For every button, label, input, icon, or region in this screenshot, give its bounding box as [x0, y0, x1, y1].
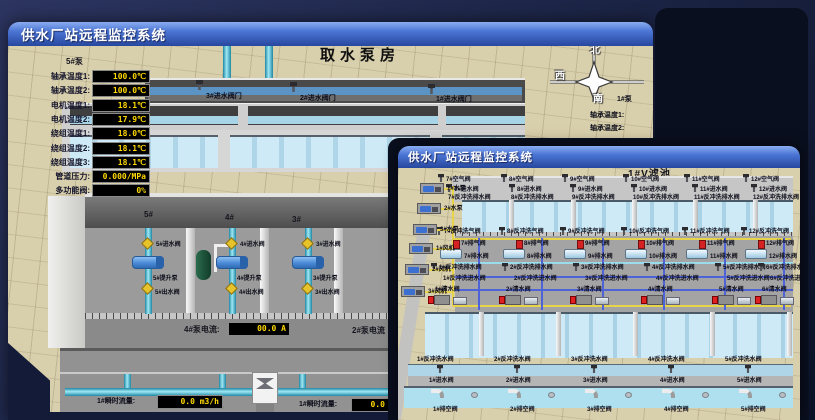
pool-pier — [710, 312, 715, 356]
bottom-inlet-valve-label: 5#进水阀 — [737, 378, 762, 385]
bw-drain-valve-label: 12#反冲洗排水阀 — [753, 195, 799, 202]
air-valve-label: 11#空气阀 — [692, 177, 720, 184]
lift-pump-label: 4#提升泵 — [237, 276, 262, 283]
compass-west-label: 西 — [555, 72, 565, 82]
panel-row-value: 18.1℃ — [92, 156, 150, 169]
flow-meter-cabinet[interactable] — [252, 372, 278, 404]
panel-row-label: 绕组温度2: — [12, 143, 90, 155]
clean-valve-label: 5#清水阀 — [719, 287, 744, 294]
panel-row-value: 100.0℃ — [92, 84, 150, 97]
inlet-valve-label: 12#进水阀 — [759, 187, 787, 194]
low-bw-inlet-valve-label: 3#反冲洗进水阀 — [585, 276, 628, 283]
panel-row-value: 18.0℃ — [92, 127, 150, 140]
panel-row-label: 管道压力: — [12, 171, 90, 183]
desktop: 供水厂站远程监控系统 取水泵房 — [0, 0, 815, 420]
clean-water-tank-icon — [686, 249, 708, 259]
pool-pier — [787, 312, 792, 356]
floor-pier — [334, 228, 343, 313]
floor-pier — [186, 228, 195, 313]
pool-pier — [753, 200, 758, 232]
vent-valve-label: 10#排气阀 — [646, 241, 674, 248]
flow-meter-icon — [256, 378, 274, 389]
drain-valve-label: 12#排水阀 — [769, 254, 797, 261]
panel-row-label: 多功能阀: — [12, 185, 90, 197]
air-valve-icon[interactable] — [438, 174, 444, 182]
intake-channel-water — [148, 87, 522, 95]
air-valve-label: 10#空气阀 — [631, 177, 659, 184]
lift-pump-icon[interactable] — [292, 256, 324, 269]
low-bw-inlet-valve-label: 4#反冲洗进水阀 — [656, 276, 699, 283]
valve-actuator-box[interactable] — [453, 297, 467, 305]
valve-actuator-box[interactable] — [434, 295, 450, 305]
bw-water-valve-label: 5#反冲洗水阀 — [725, 357, 762, 364]
bw-drain-valve-label: 8#反冲洗排水阀 — [511, 195, 554, 202]
pressure-tank-icon — [196, 250, 211, 280]
clean-valve-label: 3#清水阀 — [577, 287, 602, 294]
pool-pier — [509, 200, 514, 232]
clean-valve-label: 4#清水阀 — [648, 287, 673, 294]
valve-actuator-box[interactable] — [595, 297, 609, 305]
panel-row-label: 轴承温度1: — [12, 71, 90, 83]
air-blower-icon[interactable] — [405, 264, 429, 275]
inlet-gate-valve-label: 3#进水阀门 — [206, 93, 242, 101]
pump-house-floor — [85, 228, 389, 313]
backwash-pump-icon[interactable] — [420, 183, 444, 194]
float-dot-icon — [779, 392, 786, 398]
panel-row-value: 18.1℃ — [92, 142, 150, 155]
column-drop-pipe — [478, 238, 480, 310]
lift-pump-icon[interactable] — [216, 256, 248, 269]
drain-elbow-pipe-icon — [585, 389, 598, 398]
clean-water-tank-icon — [503, 249, 525, 259]
bw-water-valve-label: 3#反冲洗水阀 — [571, 357, 608, 364]
drain-valve-label: 7#排水阀 — [464, 254, 489, 261]
bw-drain-valve-label: 11#反冲洗排水阀 — [694, 195, 740, 202]
air-valve-label: 12#空气阀 — [751, 177, 779, 184]
compass-south-label: 南 — [593, 95, 603, 105]
panel-row-value: 18.1℃ — [92, 99, 150, 112]
low-bw-inlet-valve-label: 5#反冲洗进水阀 — [727, 276, 770, 283]
column-drop-pipe — [541, 238, 543, 310]
drain-elbow-pipe-icon — [508, 389, 521, 398]
air-valve-label: 9#空气阀 — [570, 177, 595, 184]
pool-pier — [571, 200, 576, 232]
drain-valve-label: 10#排水阀 — [649, 254, 677, 261]
panel-row-label: 绕组温度3: — [12, 157, 90, 169]
inlet-valve-label: 10#进水阀 — [639, 187, 667, 194]
bw-drain-valve-label: 9#反冲洗排水阀 — [572, 195, 615, 202]
building-wall — [48, 196, 85, 348]
riser-pipe — [223, 46, 231, 79]
bw-air-valve-label: 8#反冲洗气阀 — [507, 229, 544, 236]
bottom-inlet-valve-label: 1#进水阀 — [429, 378, 454, 385]
clean-water-tank-icon — [625, 249, 647, 259]
pump-panel-title: 5#泵 — [66, 57, 83, 66]
low-bw-drain-valve-label: 2#反冲洗排水阀 — [510, 265, 553, 272]
clean-water-tank-icon — [745, 249, 767, 259]
vent-valve-icon[interactable] — [638, 240, 645, 249]
bw-air-valve-label: 12#反冲洗气阀 — [749, 229, 789, 236]
low-bw-drain-valve-label: 6#反冲洗排水阀 — [766, 265, 800, 272]
empty-valve-label: 5#排空阀 — [741, 407, 766, 414]
pool-pier — [632, 200, 637, 232]
vent-valve-icon[interactable] — [758, 240, 765, 249]
pool-pier — [693, 200, 698, 232]
vent-valve-label: 12#排气阀 — [766, 241, 794, 248]
clean-valve-label: 2#清水阀 — [506, 287, 531, 294]
bw-drain-valve-label: 10#反冲洗排水阀 — [633, 195, 679, 202]
filter-pool-scene: 1#V滤池 7#空气阀7#进水阀7#反冲洗排水阀7#反冲洗气阀7#排气阀7#排水 — [398, 168, 800, 420]
equipment-label: 1#风机 — [436, 246, 455, 253]
bay-label: 5# — [144, 210, 153, 219]
backwash-pump-icon[interactable] — [417, 203, 441, 214]
inlet-gate-valve-label: 1#进水阀门 — [436, 96, 472, 104]
bay-label: 4# — [225, 213, 234, 222]
cabinet-base — [256, 404, 274, 412]
vent-valve-label: 8#排气阀 — [524, 241, 549, 248]
drain-valve-label: 11#排水阀 — [710, 254, 738, 261]
pump-inlet-valve-label: 4#进水阀 — [240, 242, 265, 249]
back-window-titlebar[interactable]: 供水厂站远程监控系统 — [8, 22, 653, 46]
main-pipe — [65, 388, 389, 396]
float-dot-icon — [625, 392, 632, 398]
flow-label-2: 1#瞬时流量: — [299, 401, 337, 409]
float-dot-icon — [471, 392, 478, 398]
equipment-label: 3#水泵 — [440, 227, 459, 234]
valve-actuator-box[interactable] — [576, 295, 592, 305]
vent-valve-icon[interactable] — [577, 240, 584, 249]
drain-elbow-pipe-icon — [739, 389, 752, 398]
valve-actuator-box[interactable] — [780, 297, 794, 305]
lift-pump-icon[interactable] — [132, 256, 164, 269]
panel-row-label: 电机温度1: — [12, 100, 90, 112]
low-bw-inlet-valve-label: 2#反冲洗进水阀 — [514, 276, 557, 283]
low-bw-inlet-valve-label: 6#反冲洗进水阀 — [770, 276, 800, 283]
low-bw-drain-valve-label: 4#反冲洗排水阀 — [652, 265, 695, 272]
riser-pipe — [265, 46, 273, 79]
air-valve-label: 7#空气阀 — [446, 177, 471, 184]
lift-pump-label: 5#提升泵 — [153, 276, 178, 283]
bw-air-valve-label: 10#反冲洗气阀 — [629, 229, 669, 236]
scene-shadow — [8, 326, 50, 420]
inlet-valve-label: 11#进水阀 — [700, 187, 728, 194]
valve-actuator-box[interactable] — [737, 297, 751, 305]
valve-actuator-box[interactable] — [647, 295, 663, 305]
drain-elbow-pipe-icon — [431, 389, 444, 398]
panel-row-label: 绕组温度1: — [12, 128, 90, 140]
panel-row-value: 100.0℃ — [92, 70, 150, 83]
pump-outlet-valve-label: 3#出水阀 — [315, 290, 340, 297]
drain-elbow-pipe-icon — [662, 389, 675, 398]
column-drop-pipe — [663, 238, 665, 310]
backwash-pump-icon[interactable] — [413, 224, 437, 235]
channel-water — [446, 116, 525, 124]
air-main — [453, 238, 791, 240]
pump-outlet-valve-label: 5#出水阀 — [155, 290, 180, 297]
back-window-title: 供水厂站远程监控系统 — [21, 24, 166, 44]
bottom-inlet-valve-label: 4#进水阀 — [660, 378, 685, 385]
panel-row-value: 0% — [92, 184, 150, 197]
pump-current-value: 00.0 A — [228, 322, 290, 336]
pump-current-label-2: 2#泵电流 — [352, 326, 385, 335]
flow-value-1: 0.0 m3/h — [157, 395, 223, 409]
panel-row-label: 轴承温度2: — [12, 85, 90, 97]
scene-title: 取水泵房 — [320, 48, 400, 65]
bottom-inlet-valve-label: 3#进水阀 — [583, 378, 608, 385]
drain-valve-label: 8#排水阀 — [527, 254, 552, 261]
float-dot-icon — [702, 392, 709, 398]
empty-valve-label: 4#排空阀 — [664, 407, 689, 414]
clean-water-tank-icon — [564, 249, 586, 259]
inlet-valve-label: 9#进水阀 — [578, 187, 603, 194]
vent-valve-label: 11#排气阀 — [707, 241, 735, 248]
clean-valve-label: 6#清水阀 — [762, 287, 787, 294]
valve-actuator-box[interactable] — [666, 297, 680, 305]
flow-label-1: 1#瞬时流量: — [97, 398, 135, 406]
bw-water-valve-label: 2#反冲洗水阀 — [494, 357, 531, 364]
empty-valve-label: 3#排空阀 — [587, 407, 612, 414]
lift-pump-label: 3#提升泵 — [313, 276, 338, 283]
right-panel-row-label: 轴承温度2: — [590, 125, 624, 133]
vent-valve-icon[interactable] — [699, 240, 706, 249]
bay-label: 3# — [292, 215, 301, 224]
valve-actuator-box[interactable] — [505, 295, 521, 305]
valve-actuator-box[interactable] — [718, 295, 734, 305]
float-dot-icon — [548, 392, 555, 398]
equipment-label: 2#风机 — [432, 267, 451, 274]
air-blower-icon[interactable] — [409, 243, 433, 254]
vent-valve-label: 7#排气阀 — [461, 241, 486, 248]
compass-north-label: 北 — [590, 46, 600, 56]
bottom-inlet-valve-label: 2#进水阀 — [506, 378, 531, 385]
panel-row-label: 电机温度2: — [12, 114, 90, 126]
front-window-titlebar[interactable]: 供水厂站远程监控系统 — [398, 146, 800, 168]
inlet-gate-valve-label: 2#进水阀门 — [300, 95, 336, 103]
channel-water — [248, 116, 438, 124]
drain-channel — [404, 386, 793, 408]
air-branch-main — [453, 305, 791, 307]
equipment-label: 2#水泵 — [444, 206, 463, 213]
equipment-label: 1#水泵 — [447, 186, 466, 193]
empty-valve-label: 1#排空阀 — [433, 407, 458, 414]
pump-house-wall — [85, 197, 389, 228]
pool-pier — [633, 312, 638, 356]
front-window: 供水厂站远程监控系统 1#V滤池 — [398, 146, 800, 420]
inlet-valve-label: 8#进水阀 — [517, 187, 542, 194]
bw-air-valve-label: 11#反冲洗气阀 — [690, 229, 730, 236]
vent-valve-label: 9#排气阀 — [585, 241, 610, 248]
bw-air-valve-label: 9#反冲洗气阀 — [568, 229, 605, 236]
valve-actuator-box[interactable] — [524, 297, 538, 305]
equipment-label: 3#风机 — [428, 289, 447, 296]
air-blower-icon[interactable] — [401, 286, 425, 297]
empty-valve-label: 2#排空阀 — [510, 407, 535, 414]
panel-row-value: 17.9℃ — [92, 113, 150, 126]
drain-valve-label: 9#排水阀 — [588, 254, 613, 261]
pump-inlet-valve-label: 5#进水阀 — [156, 242, 181, 249]
pump-current-label: 4#泵电流: — [184, 325, 220, 334]
low-bw-drain-valve-label: 3#反冲洗排水阀 — [581, 265, 624, 272]
bw-water-valve-label: 4#反冲洗水阀 — [648, 357, 685, 364]
low-bw-inlet-valve-label: 1#反冲洗进水阀 — [443, 276, 486, 283]
panel-row-value: 0.000/MPa — [92, 170, 150, 183]
floor-pier — [260, 228, 269, 313]
right-panel-pump-label: 1#泵 — [617, 96, 632, 104]
pump-inlet-valve-label: 3#进水阀 — [316, 242, 341, 249]
bw-water-valve-label: 1#反冲洗水阀 — [417, 357, 454, 364]
front-window-title: 供水厂站远程监控系统 — [408, 149, 533, 165]
pump-outlet-valve-label: 4#出水阀 — [239, 290, 264, 297]
vent-valve-icon[interactable] — [516, 240, 523, 249]
pool-pier — [556, 312, 561, 356]
bw-drain-valve-label: 7#反冲洗排水阀 — [448, 195, 491, 202]
pool-pier — [479, 312, 484, 356]
right-panel-row-label: 轴承温度1: — [590, 112, 624, 120]
air-valve-label: 8#空气阀 — [509, 177, 534, 184]
valve-actuator-box[interactable] — [761, 295, 777, 305]
